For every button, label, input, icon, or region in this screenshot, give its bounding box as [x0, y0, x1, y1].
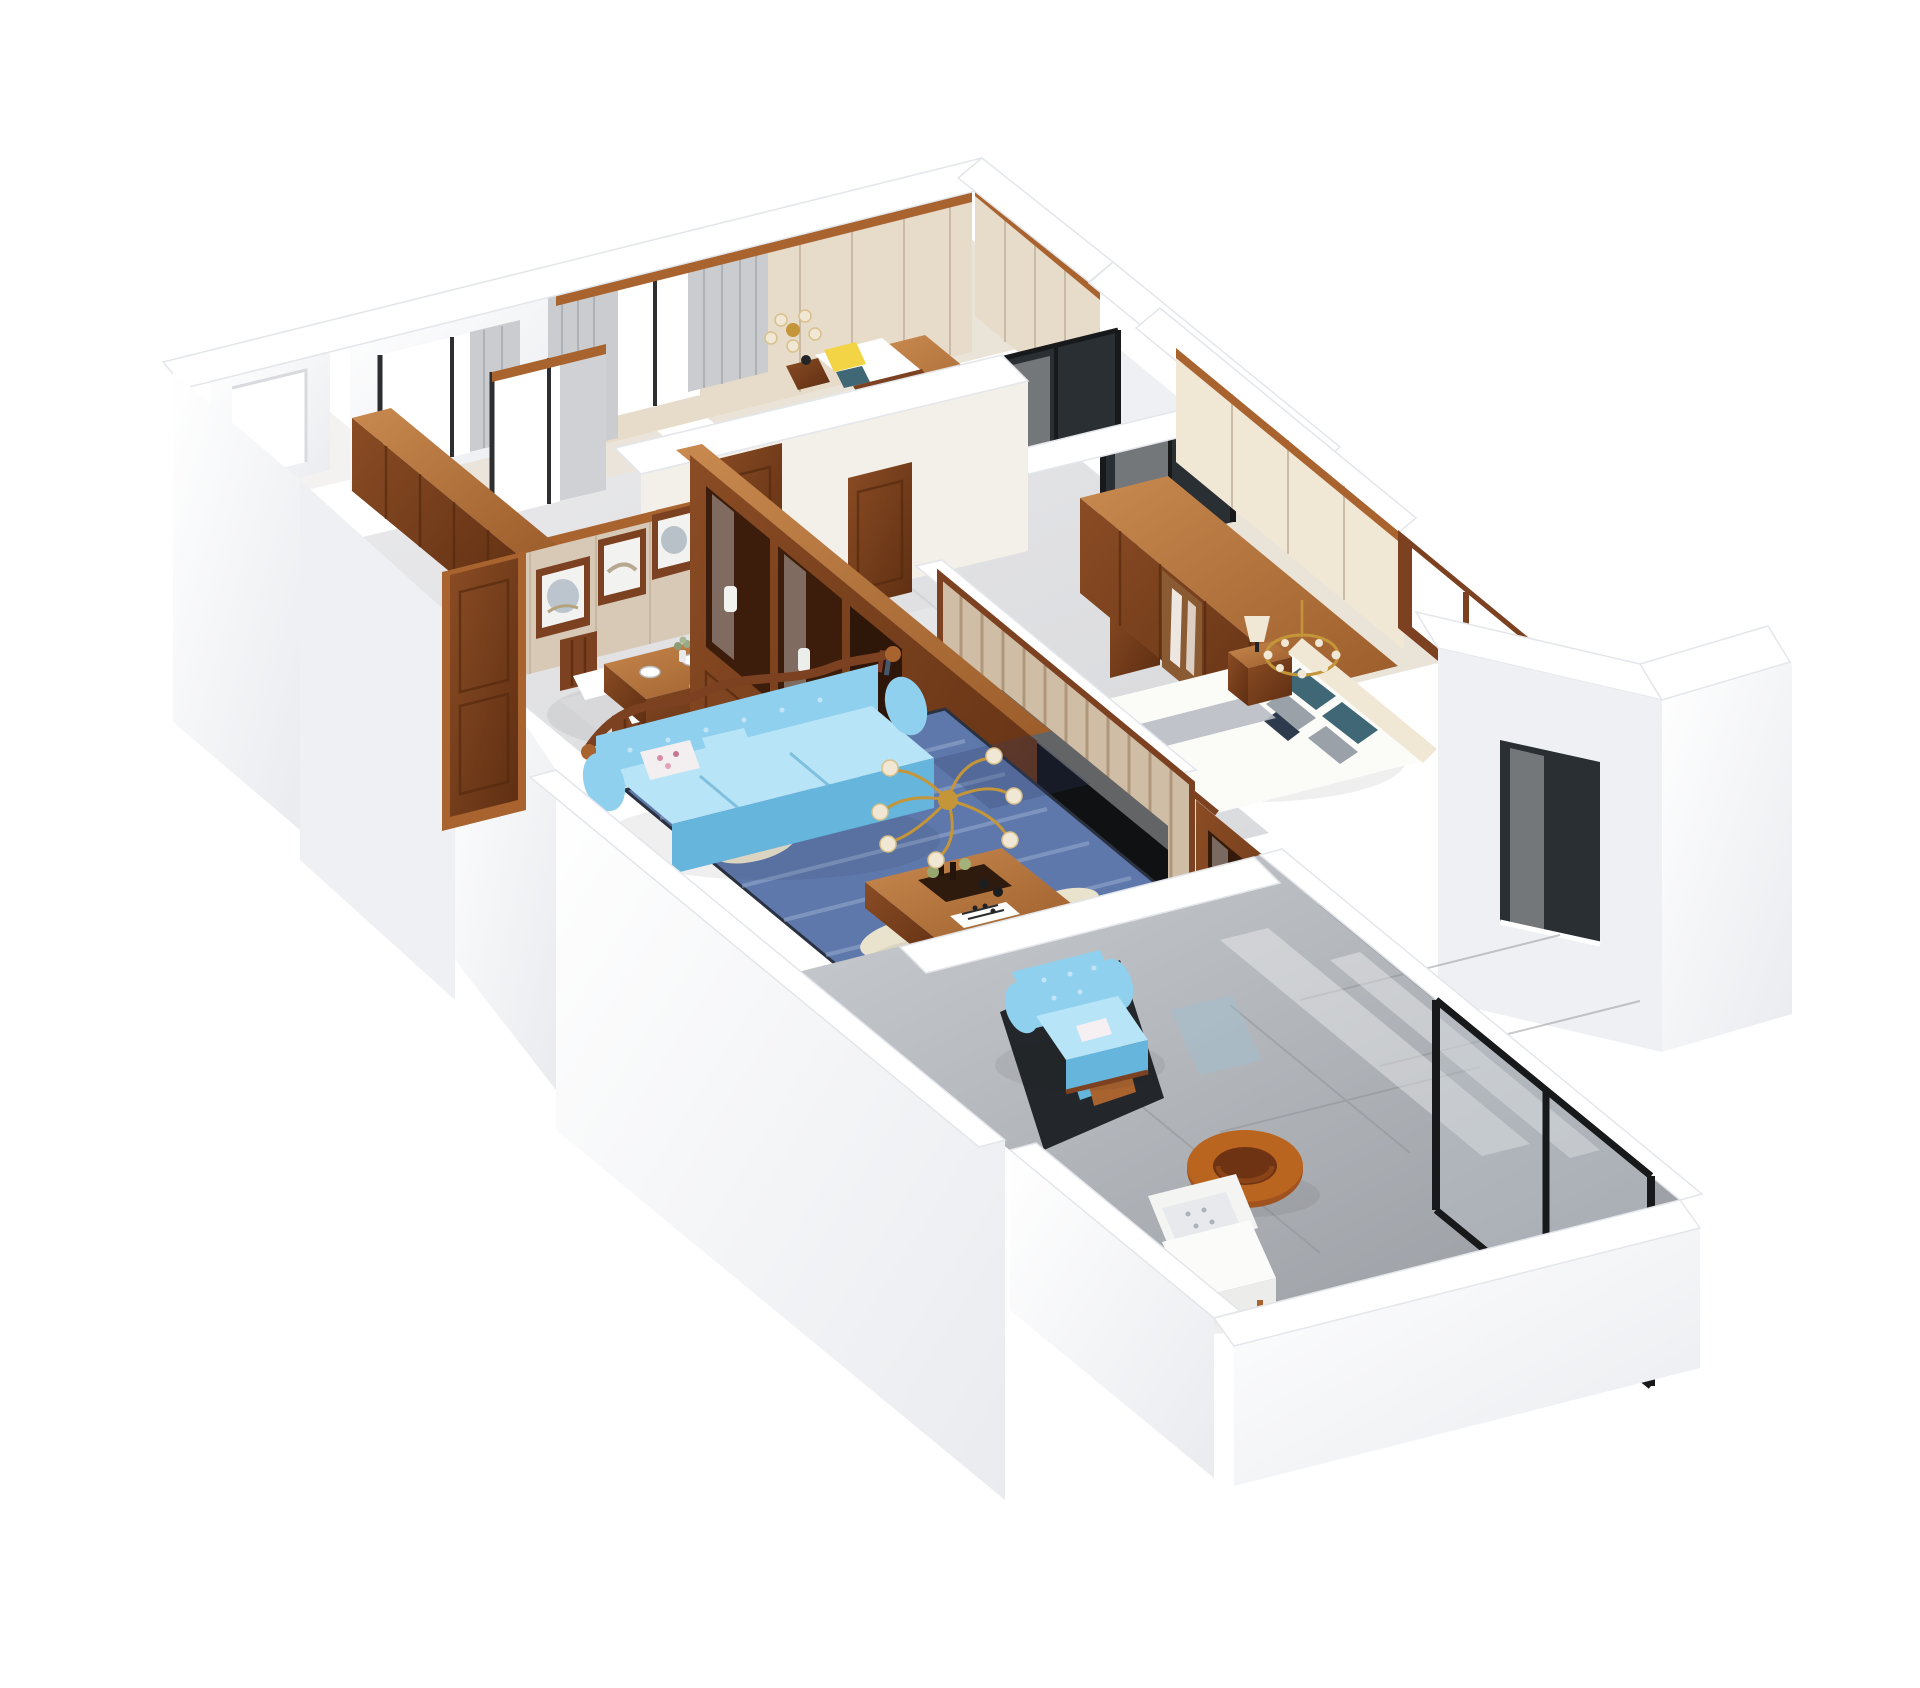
white-vase: [724, 586, 737, 612]
white-vase: [798, 648, 810, 672]
bay-right-face: [1662, 662, 1792, 1052]
framed-painting-3: [652, 504, 696, 580]
bay-window: [1500, 740, 1600, 944]
kitchen-pass-window: [492, 344, 606, 518]
framed-painting-1: [536, 556, 590, 639]
entry-door: [442, 551, 526, 831]
render-canvas: [0, 0, 1920, 1688]
bedroom2-table-lamp: [801, 355, 811, 365]
framed-painting-2: [598, 528, 646, 606]
bay-volume: [1416, 612, 1792, 1052]
sofa-scroll-arm: [885, 646, 901, 662]
hanging-garment: [1170, 588, 1182, 668]
apartment-cutaway-render: [0, 0, 1920, 1688]
